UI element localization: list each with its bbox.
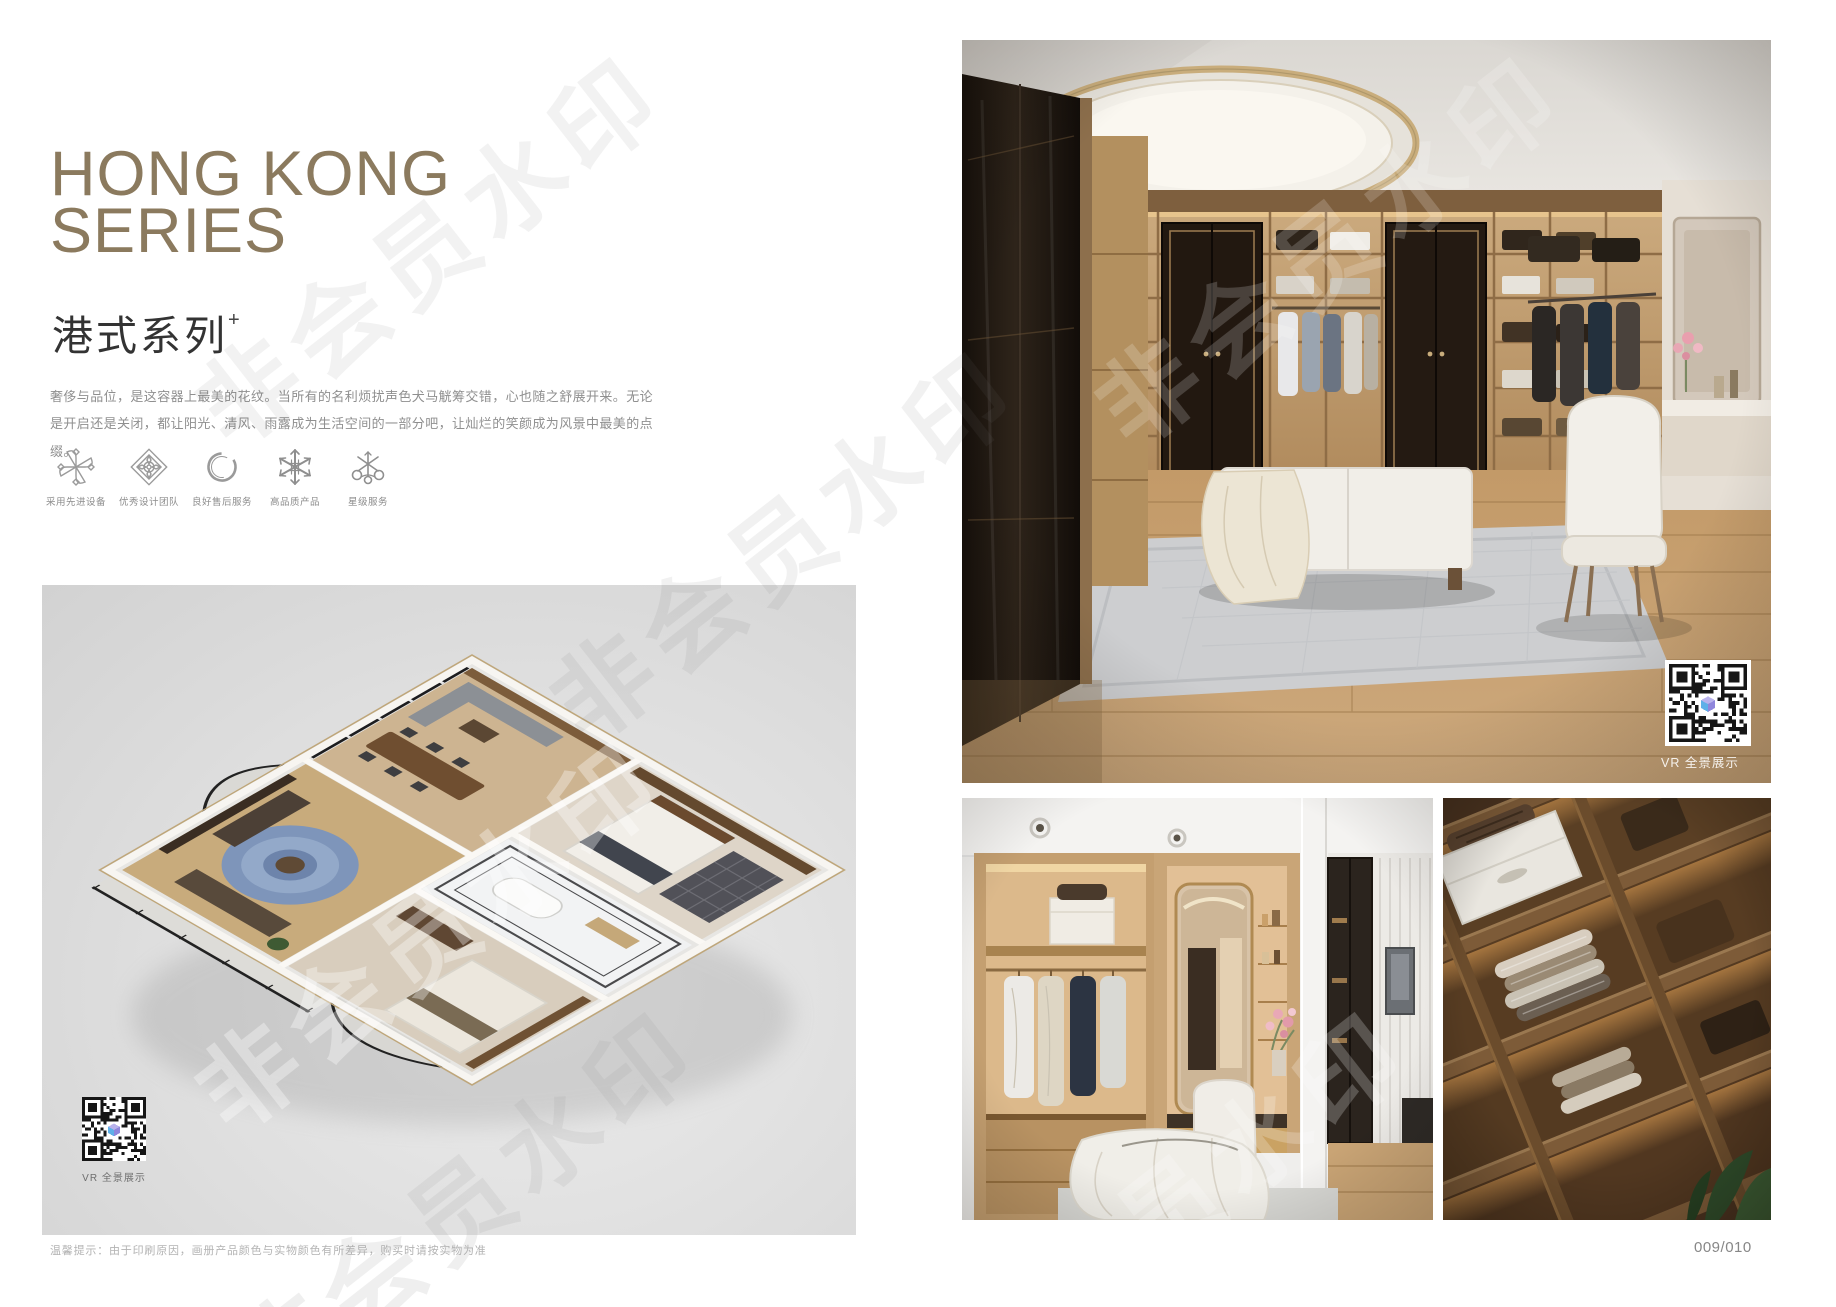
- feature-item: 良好售后服务: [189, 446, 255, 508]
- qr-code-floorplan: [82, 1097, 146, 1161]
- floorplan-image: VR 全景展示: [42, 585, 856, 1235]
- feature-item: 高品质产品: [262, 446, 328, 508]
- closet-room-illustration: [962, 40, 1771, 783]
- series-subtitle: 港式系列+: [52, 302, 243, 362]
- vanity-illustration: [962, 798, 1433, 1220]
- pinwheel-icon: [55, 446, 97, 488]
- feature-label: 优秀设计团队: [116, 494, 182, 508]
- feature-item: 优秀设计团队: [116, 446, 182, 508]
- rosette-icon: [128, 446, 170, 488]
- feature-label: 高品质产品: [262, 494, 328, 508]
- snowflake-icon: [274, 446, 316, 488]
- qr-code-main-photo: [1665, 660, 1751, 746]
- photo-large-closet: VR 全景展示: [962, 40, 1771, 783]
- photo-shelf-closeup: [1443, 798, 1771, 1220]
- vr-label-floorplan: VR 全景展示: [72, 1169, 156, 1184]
- footer-note: 温馨提示：由于印刷原因，画册产品颜色与实物颜色有所差异，购买时请按实物为准: [50, 1242, 487, 1258]
- page-title: HONG KONG SERIES: [50, 146, 451, 260]
- shelf-illustration: [1443, 798, 1771, 1220]
- page-number: 009/010: [1694, 1239, 1752, 1256]
- catalog-page: HONG KONG SERIES 港式系列+ 奢侈与品位，是这容器上最美的花纹。…: [0, 0, 1836, 1307]
- ring-icon: [201, 446, 243, 488]
- page-title-line1: HONG KONG: [50, 146, 451, 203]
- feature-list: 采用先进设备 优秀设计团队 良好售后服务: [43, 446, 408, 508]
- vr-label-main-photo: VR 全景展示: [1661, 752, 1753, 771]
- feature-label: 良好售后服务: [189, 494, 255, 508]
- feature-label: 采用先进设备: [43, 494, 109, 508]
- feature-label: 星级服务: [335, 494, 401, 508]
- series-subtitle-plus: +: [228, 309, 243, 331]
- floorplan-illustration: [42, 585, 856, 1235]
- series-subtitle-text: 港式系列: [52, 313, 228, 359]
- photo-vanity-corner: [962, 798, 1433, 1220]
- feature-item: 采用先进设备: [43, 446, 109, 508]
- page-title-line2: SERIES: [50, 203, 451, 260]
- ornament-icon: [347, 446, 389, 488]
- feature-item: 星级服务: [335, 446, 401, 508]
